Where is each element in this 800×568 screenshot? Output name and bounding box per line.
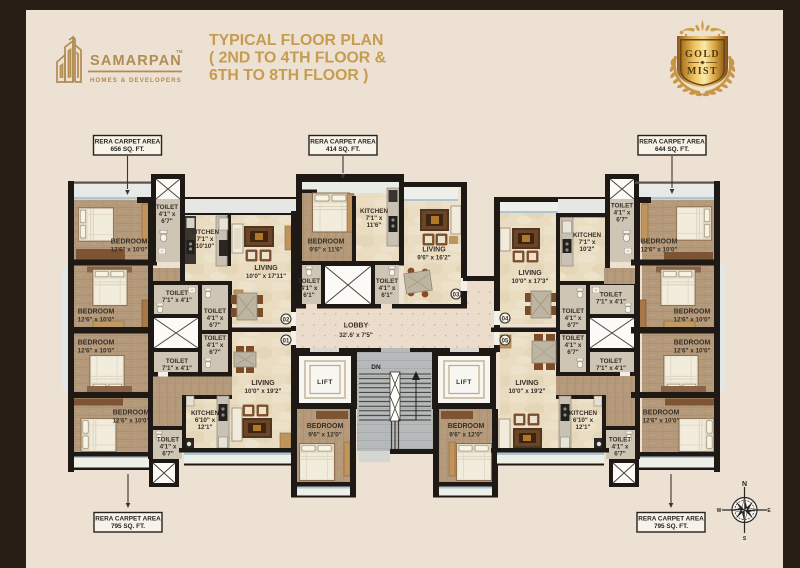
svg-text:12'6" x 10'0": 12'6" x 10'0" — [78, 348, 115, 355]
svg-text:6'10" x: 6'10" x — [195, 417, 216, 424]
svg-text:TM: TM — [176, 49, 183, 54]
svg-text:6'7": 6'7" — [161, 218, 173, 225]
svg-text:BEDROOM: BEDROOM — [113, 410, 150, 417]
svg-text:04: 04 — [502, 317, 509, 323]
svg-text:RERA CARPET AREA: RERA CARPET AREA — [310, 139, 376, 146]
svg-text:9'6" x 12'0": 9'6" x 12'0" — [308, 432, 341, 439]
svg-text:BEDROOM: BEDROOM — [674, 340, 711, 347]
svg-text:414 SQ. FT.: 414 SQ. FT. — [326, 146, 360, 153]
svg-text:KITCHEN: KITCHEN — [360, 208, 388, 215]
svg-text:10'0" x 17'3": 10'0" x 17'3" — [512, 278, 549, 285]
svg-text:MIST: MIST — [687, 66, 718, 77]
svg-text:KITCHEN: KITCHEN — [569, 410, 597, 417]
svg-text:6'7": 6'7" — [567, 322, 579, 329]
svg-text:KITCHEN: KITCHEN — [191, 410, 219, 417]
svg-text:BEDROOM: BEDROOM — [111, 239, 148, 246]
svg-text:795 SQ. FT.: 795 SQ. FT. — [654, 523, 688, 530]
svg-text:12'6" x 10'0": 12'6" x 10'0" — [113, 418, 150, 425]
svg-text:LIFT: LIFT — [456, 379, 472, 386]
svg-text:RERA CARPET AREA: RERA CARPET AREA — [638, 516, 704, 523]
svg-text:4'1" x: 4'1" x — [379, 285, 396, 292]
svg-text:12'6" x 10'0": 12'6" x 10'0" — [78, 317, 115, 324]
svg-text:4'1" x: 4'1" x — [612, 444, 629, 451]
svg-text:10'0" x 19'2": 10'0" x 19'2" — [245, 388, 282, 395]
svg-text:7'1" x 4'1": 7'1" x 4'1" — [596, 299, 626, 306]
svg-text:9'6" x 16'2": 9'6" x 16'2" — [417, 255, 450, 262]
svg-text:6'7": 6'7" — [616, 217, 628, 224]
svg-text:6'7": 6'7" — [162, 451, 174, 458]
svg-text:12'6" x 10'0": 12'6" x 10'0" — [643, 418, 680, 425]
svg-text:32'.6' x 7'5": 32'.6' x 7'5" — [339, 332, 373, 339]
svg-text:9'6" x 11'6": 9'6" x 11'6" — [309, 247, 342, 254]
svg-text:10'2": 10'2" — [580, 246, 595, 253]
svg-text:BEDROOM: BEDROOM — [643, 410, 680, 417]
svg-text:644 SQ. FT.: 644 SQ. FT. — [655, 146, 689, 153]
svg-text:TOILET: TOILET — [298, 278, 320, 285]
svg-text:10'0" x 19'2": 10'0" x 19'2" — [509, 388, 546, 395]
svg-text:LIVING: LIVING — [254, 265, 278, 272]
svg-text:6'7": 6'7" — [567, 349, 579, 356]
svg-text:03: 03 — [453, 293, 460, 299]
svg-text:RERA CARPET AREA: RERA CARPET AREA — [639, 139, 705, 146]
svg-text:7'1" x 4'1": 7'1" x 4'1" — [162, 297, 192, 304]
svg-text:BEDROOM: BEDROOM — [308, 239, 345, 246]
svg-text:6'7": 6'7" — [209, 322, 221, 329]
svg-text:TOILET: TOILET — [166, 358, 188, 365]
svg-text:LIVING: LIVING — [518, 270, 542, 277]
svg-text:TOILET: TOILET — [376, 278, 398, 285]
svg-text:LIVING: LIVING — [422, 247, 446, 254]
svg-text:RERA CARPET AREA: RERA CARPET AREA — [95, 516, 161, 523]
svg-text:05: 05 — [502, 339, 509, 345]
svg-text:TOILET: TOILET — [204, 335, 226, 342]
svg-text:RERA CARPET AREA: RERA CARPET AREA — [95, 139, 161, 146]
svg-text:11'6": 11'6" — [367, 222, 382, 229]
svg-text:KITCHEN: KITCHEN — [191, 229, 219, 236]
svg-text:LOBBY: LOBBY — [344, 323, 369, 330]
svg-text:12'6" x 10'0": 12'6" x 10'0" — [641, 247, 678, 254]
svg-text:BEDROOM: BEDROOM — [78, 340, 115, 347]
svg-text:10'10": 10'10" — [196, 243, 215, 250]
svg-text:12'6" x 10'0": 12'6" x 10'0" — [674, 317, 711, 324]
svg-text:TOILET: TOILET — [166, 290, 188, 297]
svg-text:TOILET: TOILET — [600, 358, 622, 365]
svg-text:TOILET: TOILET — [204, 308, 226, 315]
svg-text:SAMARPAN: SAMARPAN — [90, 53, 182, 69]
svg-text:HOMES & DEVELOPERS: HOMES & DEVELOPERS — [90, 77, 182, 84]
svg-text:12'1": 12'1" — [198, 424, 213, 431]
svg-text:4'1" x: 4'1" x — [565, 315, 582, 322]
svg-text:TOILET: TOILET — [600, 292, 622, 299]
svg-text:KITCHEN: KITCHEN — [573, 232, 601, 239]
svg-text:7'1" x: 7'1" x — [366, 215, 383, 222]
svg-text:TOILET: TOILET — [562, 308, 584, 315]
svg-text:6'1": 6'1" — [303, 292, 315, 299]
svg-text:BEDROOM: BEDROOM — [448, 423, 485, 430]
svg-text:4'1" x: 4'1" x — [614, 210, 631, 217]
svg-text:02: 02 — [283, 318, 290, 324]
svg-text:4'1" x: 4'1" x — [159, 211, 176, 218]
svg-text:BEDROOM: BEDROOM — [641, 239, 678, 246]
svg-text:4'1" x: 4'1" x — [207, 342, 224, 349]
svg-text:W: W — [717, 508, 722, 514]
svg-text:GOLD: GOLD — [685, 49, 720, 60]
svg-text:TOILET: TOILET — [609, 437, 631, 444]
svg-text:6'7": 6'7" — [209, 349, 221, 356]
svg-text:BEDROOM: BEDROOM — [674, 309, 711, 316]
svg-text:7'1" x 4'1": 7'1" x 4'1" — [162, 365, 192, 372]
svg-text:4'1" x: 4'1" x — [565, 342, 582, 349]
svg-text:7'1" x: 7'1" x — [197, 236, 214, 243]
svg-text:TOILET: TOILET — [562, 335, 584, 342]
svg-text:4'1" x: 4'1" x — [207, 315, 224, 322]
svg-text:7'1" x 4'1": 7'1" x 4'1" — [596, 365, 626, 372]
svg-text:TOILET: TOILET — [156, 204, 178, 211]
svg-text:TOILET: TOILET — [611, 203, 633, 210]
svg-text:( 2ND TO 4TH FLOOR &: ( 2ND TO 4TH FLOOR & — [209, 50, 386, 67]
svg-text:12'6" x 10'0": 12'6" x 10'0" — [111, 247, 148, 254]
svg-text:N: N — [742, 481, 747, 488]
svg-text:4'1" x: 4'1" x — [160, 444, 177, 451]
svg-text:LIFT: LIFT — [317, 379, 333, 386]
svg-text:7'1" x: 7'1" x — [579, 239, 596, 246]
svg-text:6'10" x: 6'10" x — [573, 417, 594, 424]
svg-text:01: 01 — [283, 339, 290, 345]
svg-text:TYPICAL FLOOR PLAN: TYPICAL FLOOR PLAN — [209, 32, 383, 49]
svg-text:6'7": 6'7" — [614, 451, 626, 458]
svg-text:12'6" x 10'0": 12'6" x 10'0" — [674, 348, 711, 355]
svg-text:DN: DN — [371, 364, 381, 371]
svg-text:6TH TO 8TH FLOOR ): 6TH TO 8TH FLOOR ) — [209, 67, 368, 84]
svg-text:LIVING: LIVING — [251, 380, 275, 387]
svg-text:10'0" x 17'11": 10'0" x 17'11" — [246, 273, 286, 280]
svg-text:TOILET: TOILET — [157, 437, 179, 444]
svg-text:LIVING: LIVING — [515, 380, 539, 387]
svg-text:9'6" x 12'0": 9'6" x 12'0" — [449, 432, 482, 439]
svg-text:12'1": 12'1" — [576, 424, 591, 431]
svg-text:795 SQ. FT.: 795 SQ. FT. — [111, 523, 145, 530]
svg-text:4'1" x: 4'1" x — [301, 285, 318, 292]
svg-text:BEDROOM: BEDROOM — [78, 309, 115, 316]
svg-text:6'1": 6'1" — [381, 292, 393, 299]
svg-text:656 SQ. FT.: 656 SQ. FT. — [110, 146, 144, 153]
svg-text:BEDROOM: BEDROOM — [307, 423, 344, 430]
